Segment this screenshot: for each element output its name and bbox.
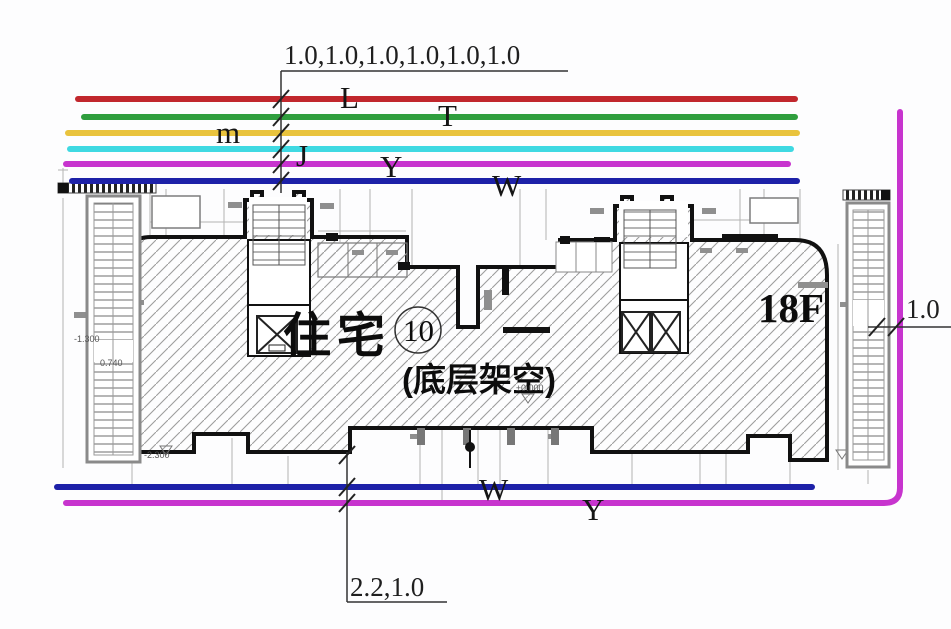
right-stair-core	[619, 201, 688, 353]
label-W-bottom: W	[479, 472, 509, 507]
bottom-dimension-text: 2.2,1.0	[350, 572, 424, 602]
label-Y: Y	[380, 149, 402, 184]
elevation-mark: ±0.000	[516, 383, 543, 393]
column-dot	[465, 442, 475, 452]
elevation-mark: -2.300	[144, 450, 170, 460]
label-T: T	[438, 98, 457, 133]
label-Y-bottom: Y	[582, 492, 604, 527]
unit-number: 10	[403, 313, 434, 348]
label-J: J	[296, 138, 308, 173]
elevation-mark: -1.300	[74, 334, 100, 344]
plan-canvas: L T m J Y W W Y 1.0,1.0,1.0,1.0,1.0,1.0 …	[0, 0, 951, 629]
building-name: 住宅	[283, 310, 391, 363]
label-m: m	[216, 115, 240, 150]
right-dimension-text: 1.0	[906, 294, 940, 324]
label-L: L	[340, 80, 359, 115]
top-dimension-text: 1.0,1.0,1.0,1.0,1.0,1.0	[284, 40, 520, 70]
left-exterior-stair	[87, 196, 140, 462]
label-W: W	[492, 168, 522, 203]
elevator-shafts	[622, 312, 680, 352]
floor-plan-drawing: L T m J Y W W Y 1.0,1.0,1.0,1.0,1.0,1.0 …	[0, 0, 951, 629]
floor-count: 18F	[758, 285, 824, 331]
right-exterior-stair	[847, 203, 889, 467]
elevation-mark: 0.740	[100, 358, 123, 368]
